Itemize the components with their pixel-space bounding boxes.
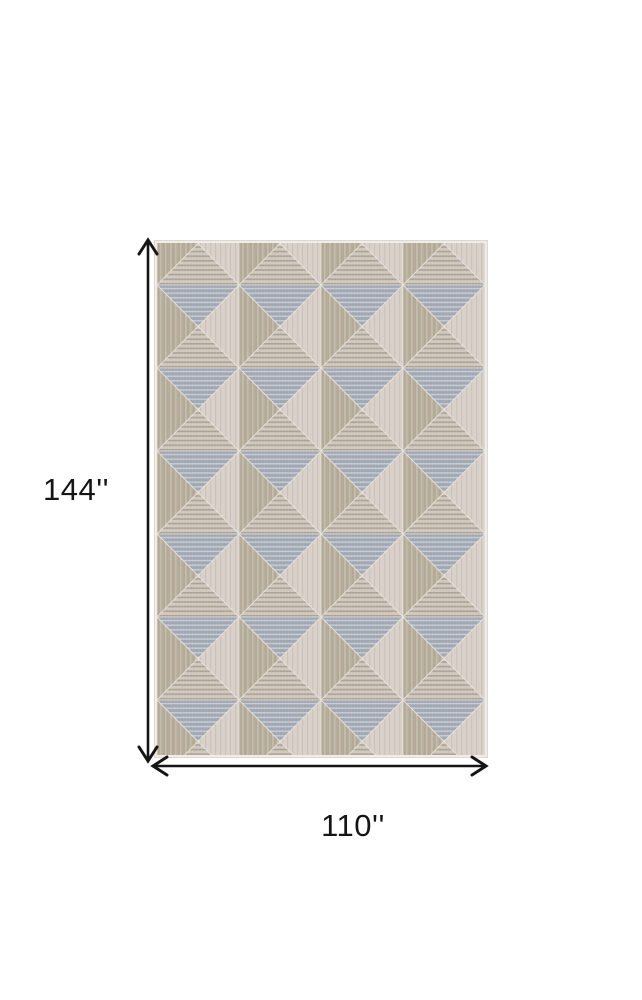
width-dimension-label: 110'' xyxy=(301,810,405,841)
rug-image xyxy=(155,241,488,758)
height-dimension-label: 144'' xyxy=(30,474,122,505)
rug-weave-texture xyxy=(157,243,485,755)
product-dimension-diagram: 144'' 110'' xyxy=(0,0,642,1000)
